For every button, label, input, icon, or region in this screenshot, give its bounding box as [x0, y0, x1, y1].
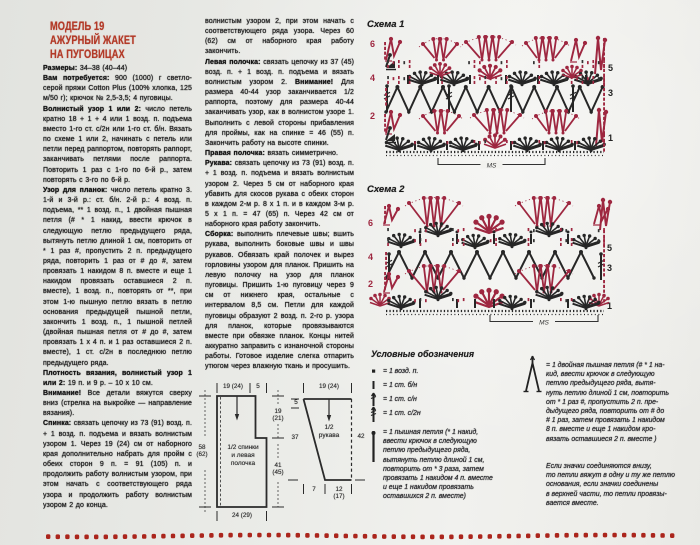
svg-text:MS: MS: [487, 163, 497, 170]
svg-text:MS: MS: [539, 320, 549, 327]
